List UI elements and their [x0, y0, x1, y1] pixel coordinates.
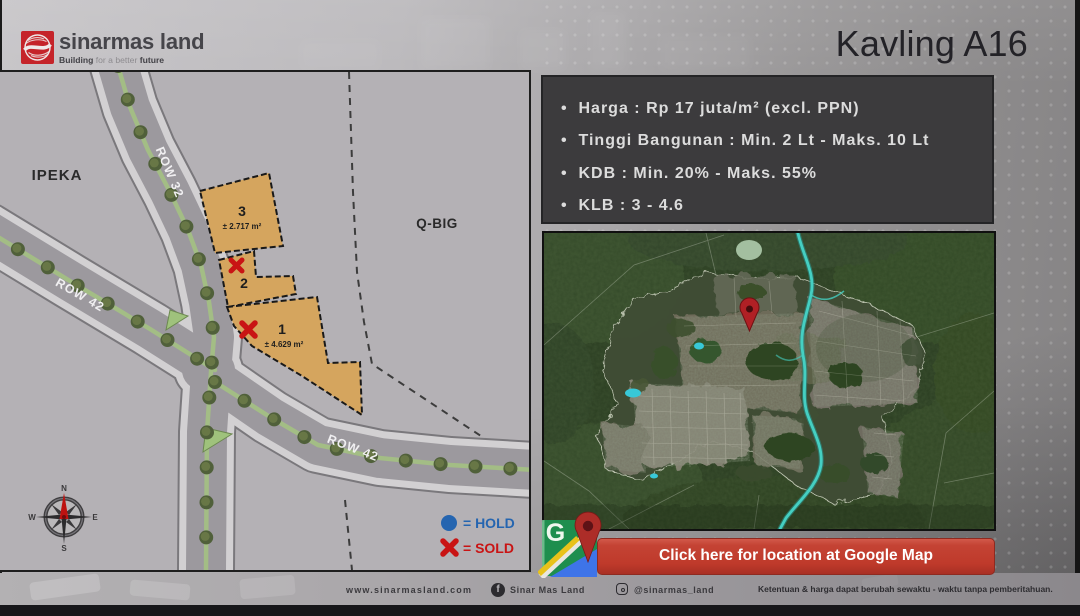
svg-text:1: 1: [278, 321, 286, 337]
svg-text:S: S: [61, 544, 67, 553]
svg-text:= SOLD: = SOLD: [463, 540, 514, 556]
svg-text:Building for a better future: Building for a better future: [59, 55, 164, 65]
svg-text:3: 3: [238, 203, 246, 219]
svg-text:G: G: [546, 519, 565, 547]
svg-text:E: E: [92, 513, 98, 522]
svg-text:W: W: [28, 513, 36, 522]
svg-text:N: N: [61, 484, 67, 493]
svg-text:2: 2: [240, 275, 248, 291]
svg-text:Q-BIG: Q-BIG: [416, 216, 458, 231]
svg-text:= HOLD: = HOLD: [463, 515, 515, 531]
svg-text:sinarmas land: sinarmas land: [59, 31, 204, 54]
svg-text:IPEKA: IPEKA: [32, 167, 83, 184]
svg-text:± 2.717 m²: ± 2.717 m²: [223, 222, 262, 231]
svg-text:± 4.629 m²: ± 4.629 m²: [265, 340, 304, 349]
